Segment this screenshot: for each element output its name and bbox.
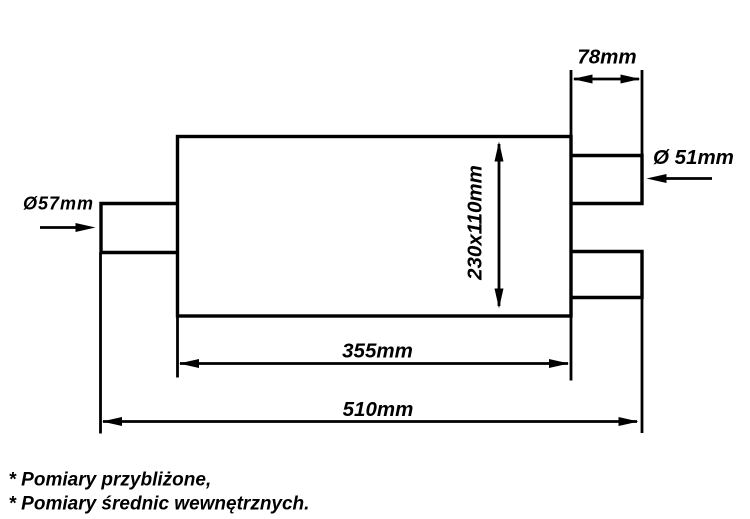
svg-text:230x110mm: 230x110mm	[464, 165, 487, 281]
svg-text:Ø 51mm: Ø 51mm	[653, 146, 734, 169]
svg-text:* Pomiary średnic wewnętrznych: * Pomiary średnic wewnętrznych.	[9, 494, 310, 515]
svg-text:510mm: 510mm	[343, 398, 414, 421]
svg-text:Ø57mm: Ø57mm	[23, 194, 94, 214]
svg-text:355mm: 355mm	[342, 340, 413, 363]
svg-text:* Pomiary przybliżone,: * Pomiary przybliżone,	[9, 470, 212, 491]
svg-text:78mm: 78mm	[577, 46, 636, 69]
